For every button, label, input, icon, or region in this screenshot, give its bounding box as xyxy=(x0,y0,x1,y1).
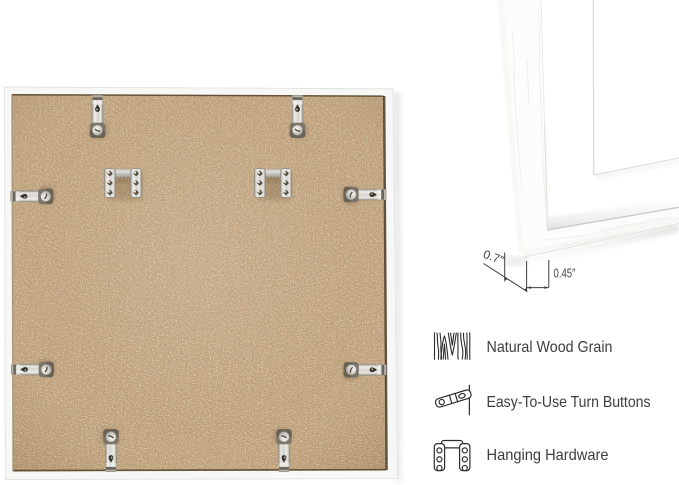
svg-text:Natural Wood Grain: Natural Wood Grain xyxy=(487,339,613,356)
svg-text:Easy-To-Use Turn Buttons: Easy-To-Use Turn Buttons xyxy=(487,394,651,411)
svg-text:Hanging Hardware: Hanging Hardware xyxy=(487,447,609,464)
svg-text:0.45″: 0.45″ xyxy=(554,266,576,280)
